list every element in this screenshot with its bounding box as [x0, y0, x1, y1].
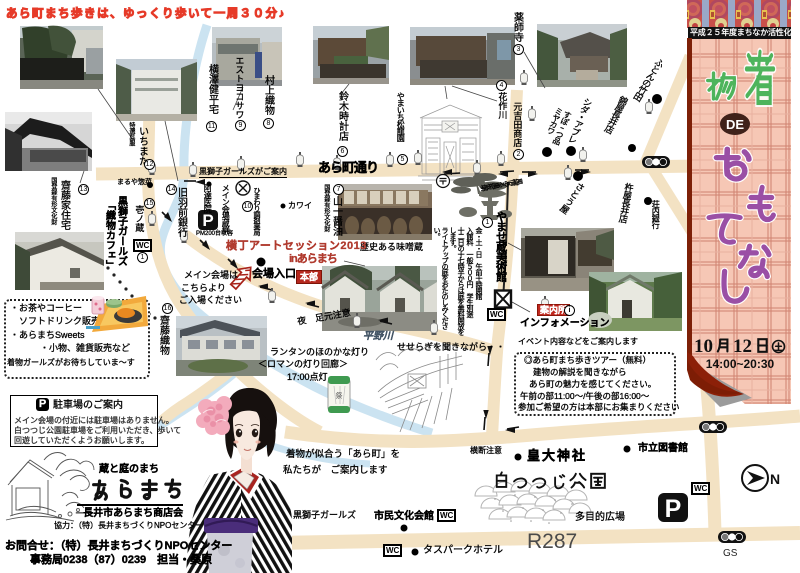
- svg-text:10: 10: [694, 336, 713, 357]
- svg-text:14:00~20:30: 14:00~20:30: [706, 357, 775, 371]
- svg-text:祭: 祭: [336, 391, 343, 400]
- svg-text:DE: DE: [726, 117, 744, 132]
- svg-text:12: 12: [733, 336, 752, 357]
- svg-text:R287: R287: [527, 530, 577, 553]
- svg-text:P: P: [665, 495, 682, 523]
- svg-text:P: P: [202, 211, 213, 230]
- svg-text:N: N: [770, 471, 780, 487]
- svg-text:GS: GS: [723, 548, 738, 559]
